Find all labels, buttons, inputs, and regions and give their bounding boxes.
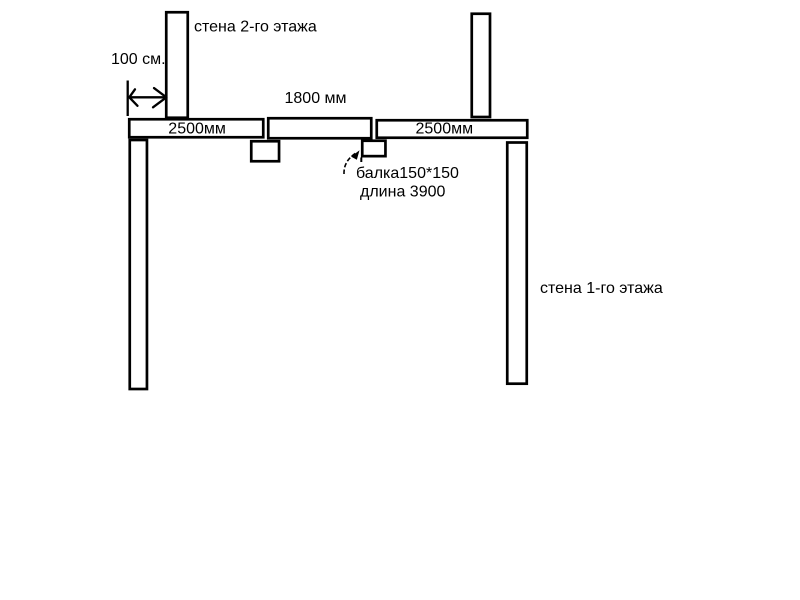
- svg-text:стена 1-го этажа: стена 1-го этажа: [540, 280, 663, 297]
- svg-text:2500мм: 2500мм: [416, 120, 474, 137]
- svg-text:длина 3900: длина 3900: [360, 184, 445, 201]
- svg-text:балка150*150: балка150*150: [356, 165, 459, 182]
- svg-text:стена 2-го этажа: стена 2-го этажа: [194, 19, 317, 36]
- svg-text:2500мм: 2500мм: [168, 121, 226, 138]
- svg-text:100 см.: 100 см.: [111, 51, 166, 68]
- svg-text:1800 мм: 1800 мм: [285, 90, 347, 107]
